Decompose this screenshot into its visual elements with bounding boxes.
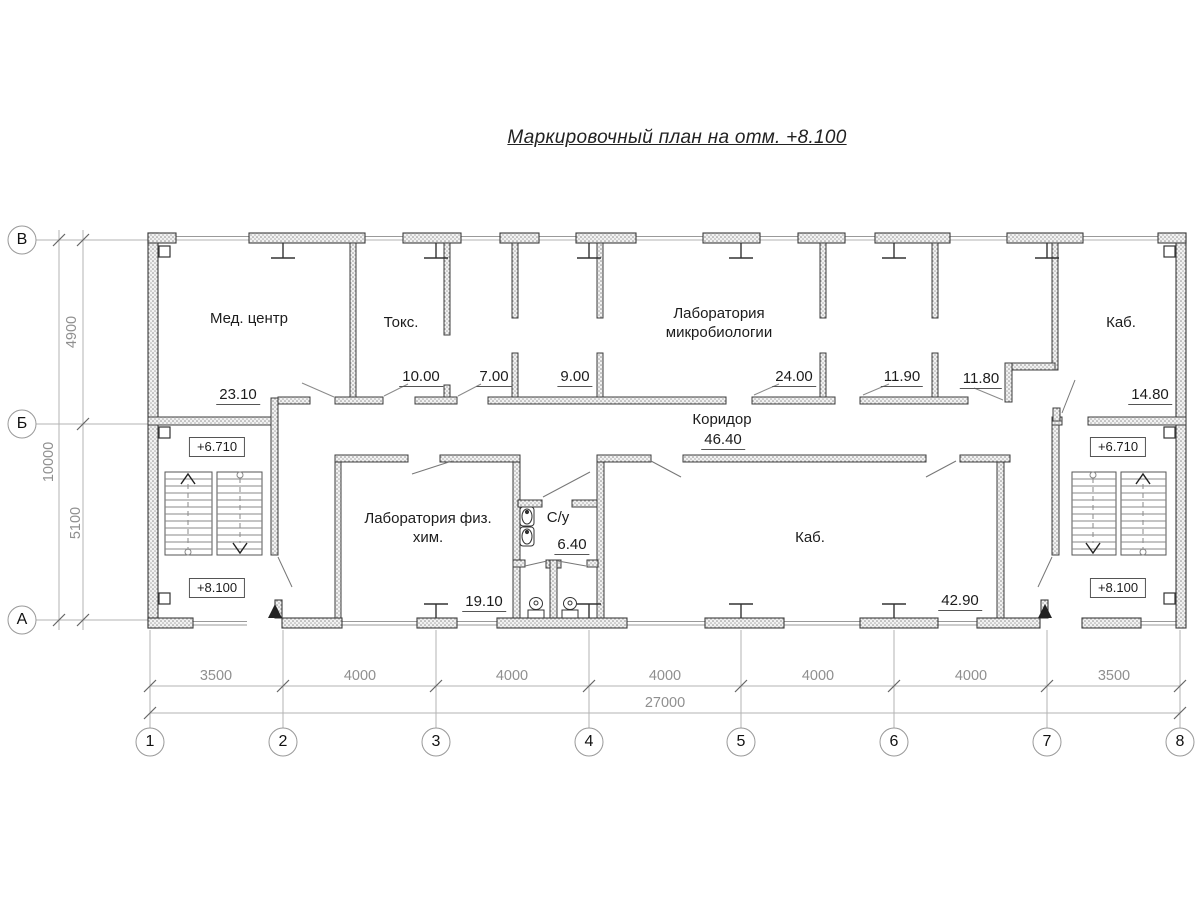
axis-number-2: 2 xyxy=(279,733,288,751)
room-label-kab-bottom: Каб. xyxy=(795,529,825,546)
axis-number-3: 3 xyxy=(432,733,441,751)
door-threshold-wedges xyxy=(268,604,1052,618)
elevation-mark-left-upper: +6.710 xyxy=(189,437,245,457)
room-area-lab-fiz: 19.10 xyxy=(462,593,506,612)
axis-letter-v: В xyxy=(17,231,28,249)
dim-left-total-10000: 10000 xyxy=(41,442,57,482)
dim-left-5100: 5100 xyxy=(68,507,84,539)
window-lines xyxy=(176,237,1176,626)
elevation-mark-right-lower: +8.100 xyxy=(1090,578,1146,598)
axis-number-1: 1 xyxy=(146,733,155,751)
room-label-toks: Токс. xyxy=(384,314,419,331)
room-area-med-center: 23.10 xyxy=(216,386,260,405)
column-symbols xyxy=(271,243,1059,618)
dim-bottom-1: 3500 xyxy=(200,668,232,684)
room-label-kab-top: Каб. xyxy=(1106,314,1136,331)
room-label-corridor: Коридор xyxy=(692,411,751,428)
room-label-med-center: Мед. центр xyxy=(210,310,288,327)
drawing-title: Маркировочный план на отм. +8.100 xyxy=(507,127,846,149)
room-label-lab-fiz: Лаборатория физ. хим. xyxy=(363,510,493,548)
room-label-su: С/у xyxy=(547,509,570,526)
dim-bottom-4: 4000 xyxy=(649,668,681,684)
room-area-1190: 11.90 xyxy=(881,368,923,387)
axis-letter-b: Б xyxy=(17,415,28,433)
room-area-su: 6.40 xyxy=(554,536,589,555)
dim-left-4900: 4900 xyxy=(64,316,80,348)
room-label-lab-micro: Лаборатория микробиологии xyxy=(629,305,809,343)
room-area-9: 9.00 xyxy=(557,368,592,387)
dim-bottom-total-27000: 27000 xyxy=(645,695,685,711)
corner-column-squares xyxy=(159,246,1175,604)
room-area-kab-top: 14.80 xyxy=(1128,386,1172,405)
room-area-toks: 10.00 xyxy=(399,368,443,387)
dim-bottom-2: 4000 xyxy=(344,668,376,684)
floor-plan-sheet: Маркировочный план на отм. +8.100 Мед. ц… xyxy=(0,0,1200,900)
door-leaf-lines xyxy=(278,380,1075,587)
stairs-left xyxy=(165,472,262,555)
dim-bottom-7: 3500 xyxy=(1098,668,1130,684)
sink-fixtures xyxy=(520,507,534,546)
room-area-7: 7.00 xyxy=(476,368,511,387)
interior-walls xyxy=(148,243,1186,618)
dim-bottom-6: 4000 xyxy=(955,668,987,684)
dim-bottom-3: 4000 xyxy=(496,668,528,684)
elevation-mark-right-upper: +6.710 xyxy=(1090,437,1146,457)
axis-number-7: 7 xyxy=(1043,733,1052,751)
axis-number-4: 4 xyxy=(585,733,594,751)
exterior-walls xyxy=(148,233,1186,628)
axis-number-6: 6 xyxy=(890,733,899,751)
axis-number-8: 8 xyxy=(1176,733,1185,751)
dim-bottom-5: 4000 xyxy=(802,668,834,684)
elevation-mark-left-lower: +8.100 xyxy=(189,578,245,598)
room-area-lab-micro: 24.00 xyxy=(772,368,816,387)
axis-lines xyxy=(36,240,1186,728)
dimension-ticks xyxy=(53,234,1186,719)
room-area-corridor: 46.40 xyxy=(701,431,745,450)
axis-letter-a: А xyxy=(17,611,28,629)
stairs-right xyxy=(1072,472,1166,555)
room-area-1180: 11.80 xyxy=(960,370,1002,389)
room-area-kab-bottom: 42.90 xyxy=(938,592,982,611)
axis-number-5: 5 xyxy=(737,733,746,751)
